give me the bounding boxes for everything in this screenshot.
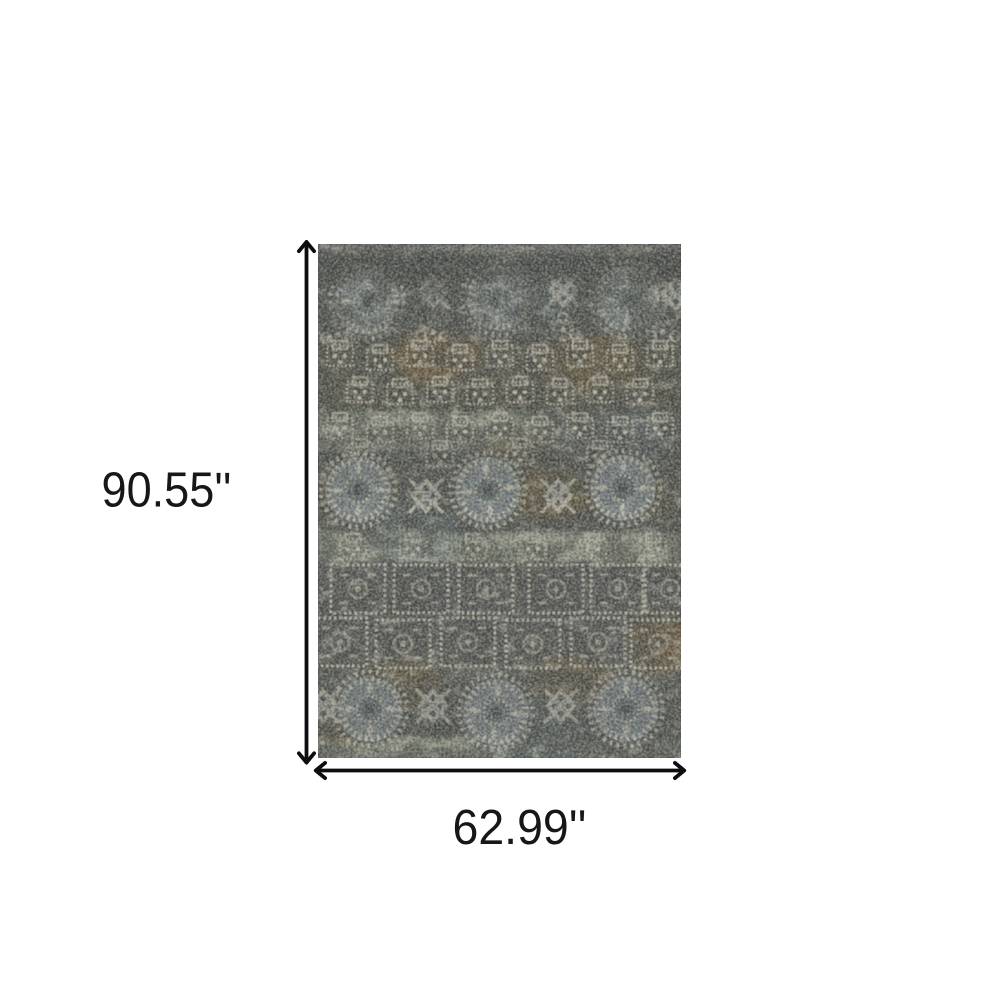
svg-text:62.99'': 62.99'' bbox=[453, 801, 587, 855]
svg-text:90.55'': 90.55'' bbox=[102, 464, 232, 518]
